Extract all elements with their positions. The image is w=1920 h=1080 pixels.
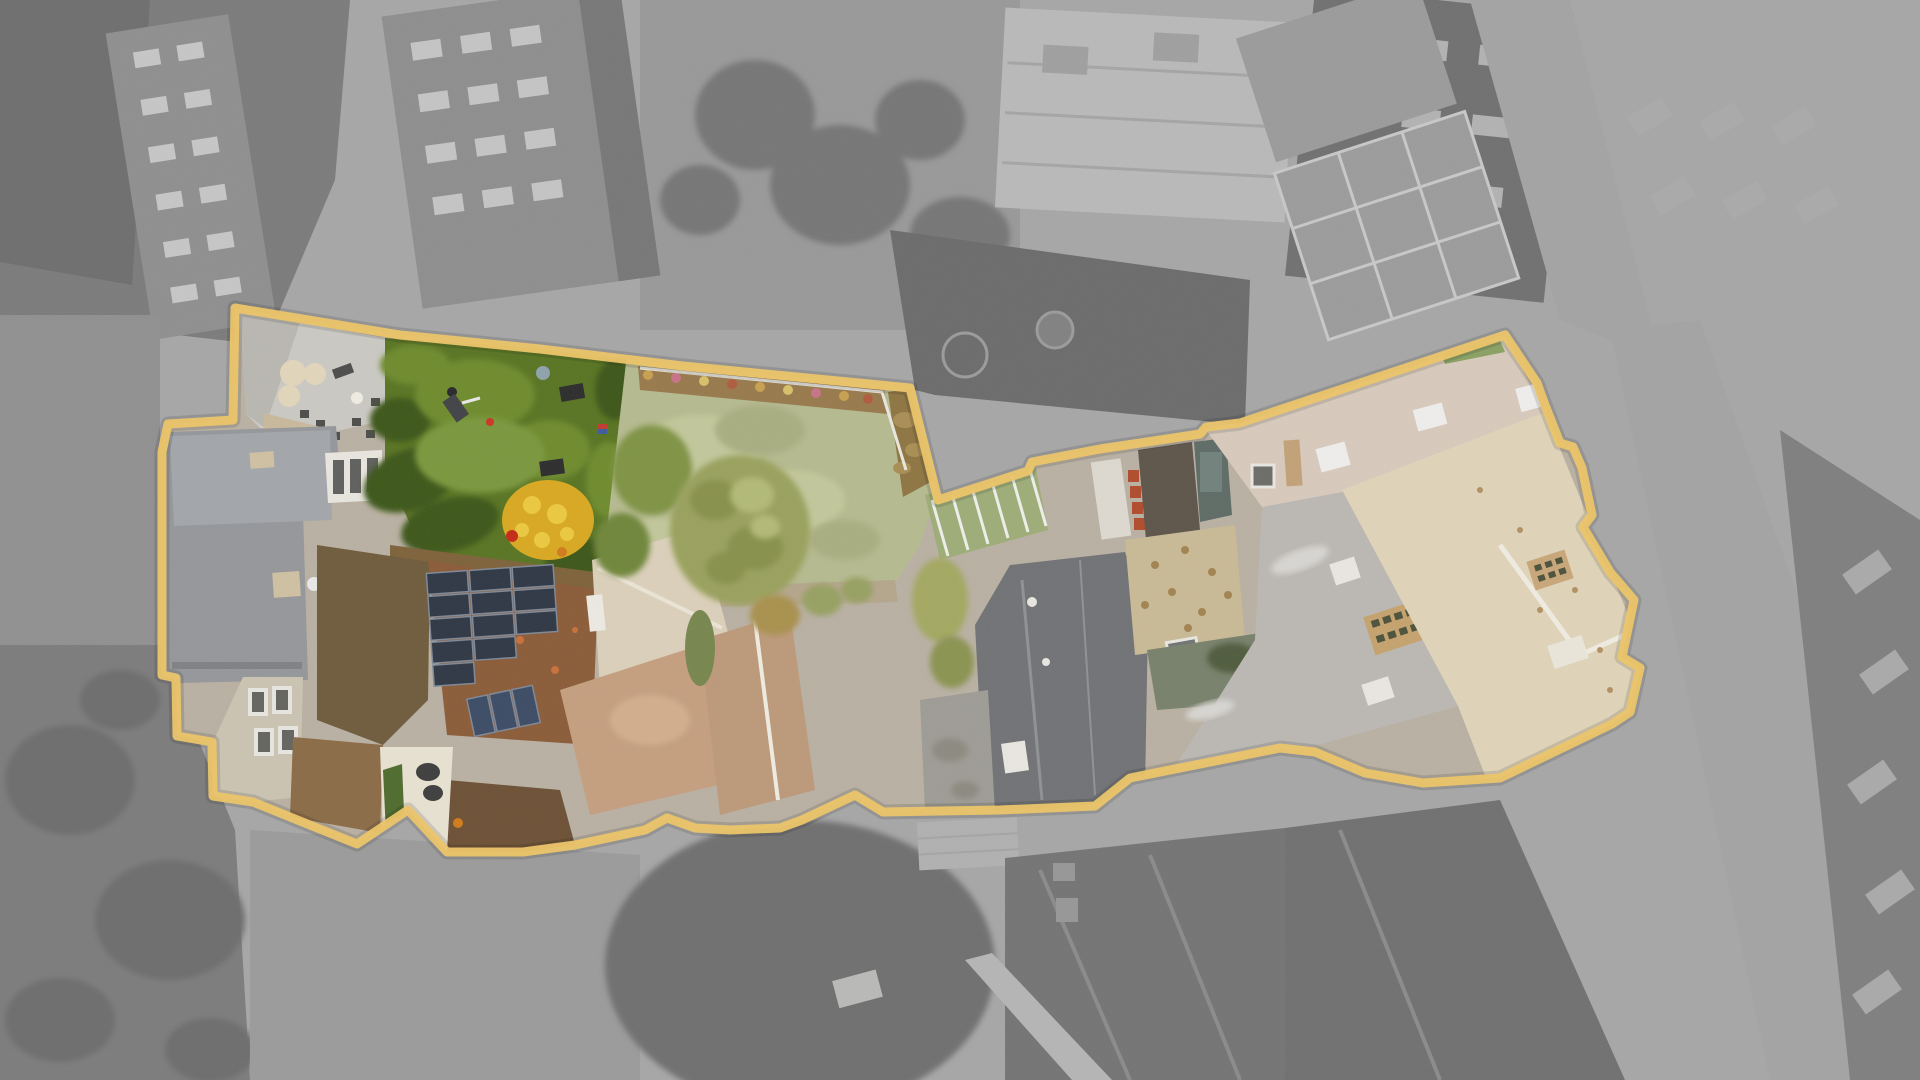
- photo-grain-overlay: [0, 0, 1920, 1080]
- aerial-photo-canvas: [0, 0, 1920, 1080]
- aerial-photo: [0, 0, 1920, 1080]
